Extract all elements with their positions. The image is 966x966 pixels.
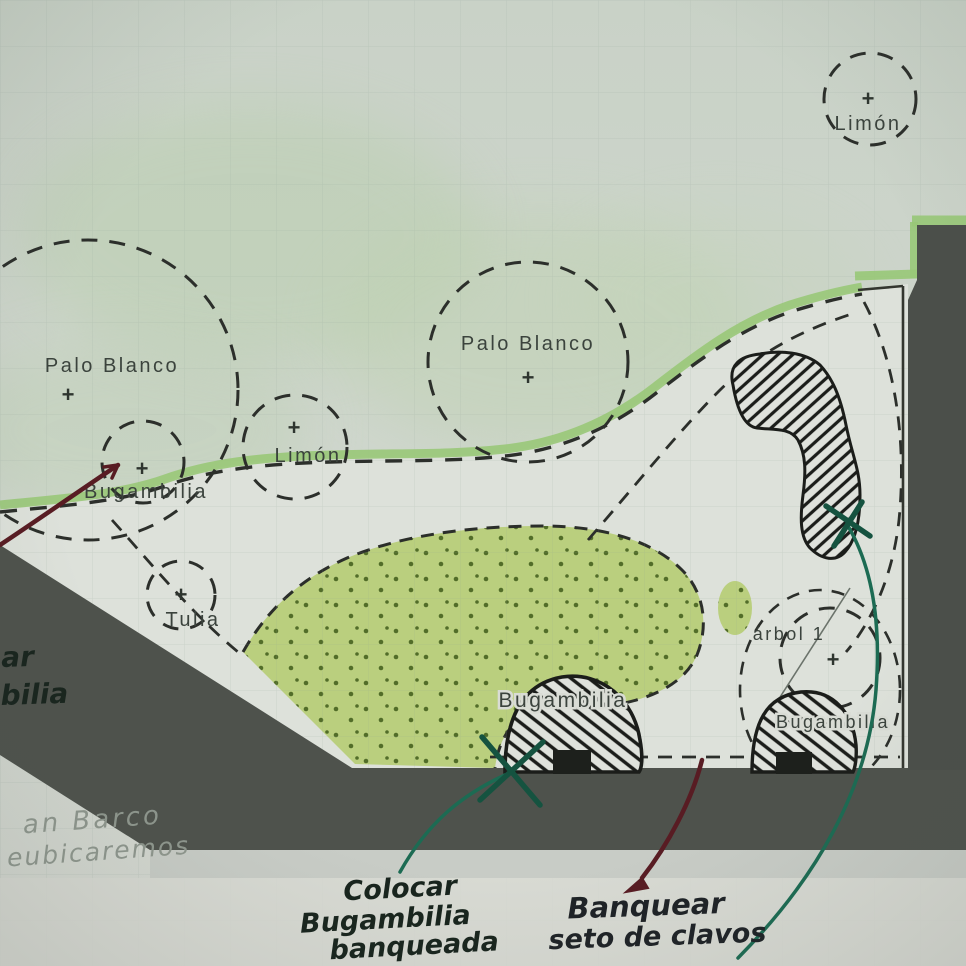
- landscape-plan-photo: Limón + Palo Blanco + Palo Blanco + Limó…: [0, 0, 966, 966]
- photo-vignette: [0, 0, 966, 966]
- plan-drawing: Limón + Palo Blanco + Palo Blanco + Limó…: [0, 0, 966, 966]
